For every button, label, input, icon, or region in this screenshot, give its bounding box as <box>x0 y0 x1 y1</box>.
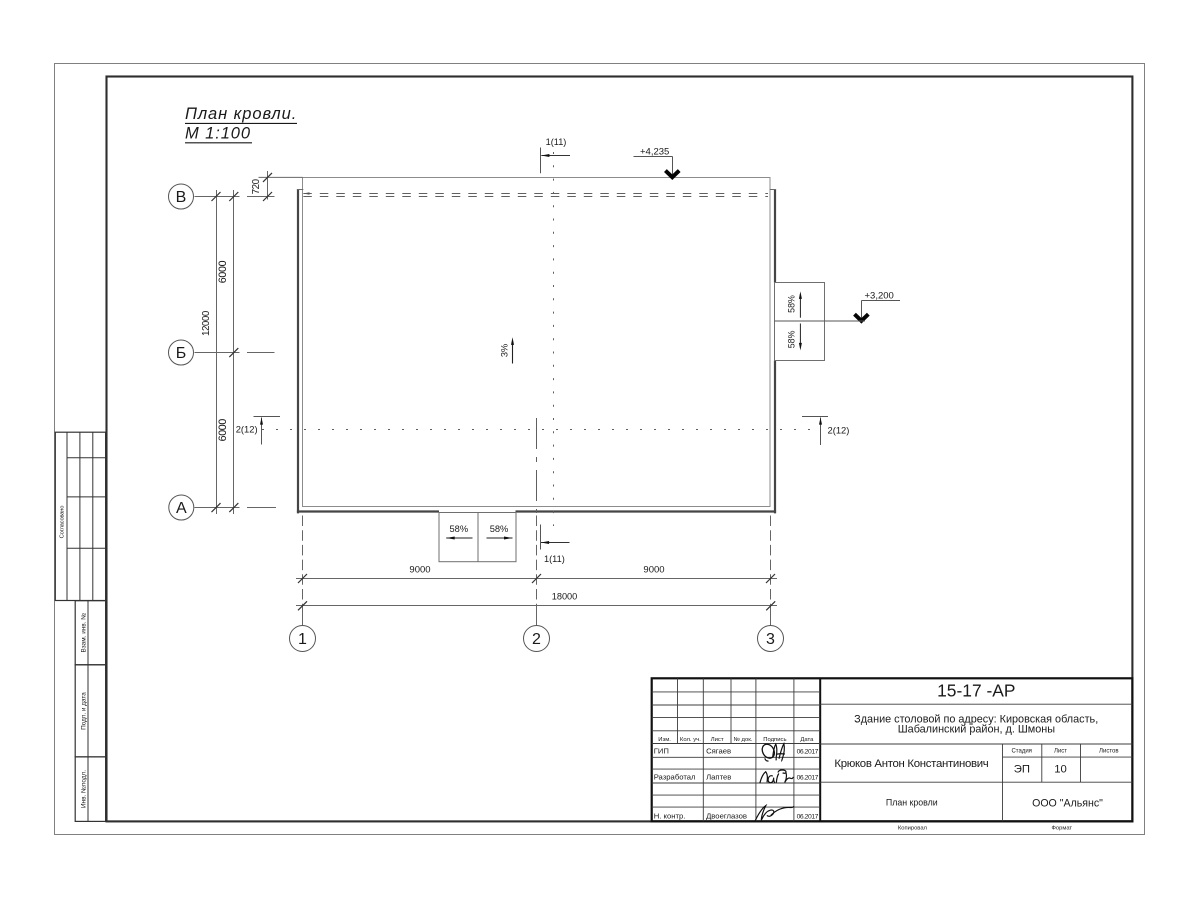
svg-text:2(12): 2(12) <box>828 425 850 436</box>
svg-text:2: 2 <box>532 631 541 648</box>
svg-text:58%: 58% <box>449 524 468 534</box>
svg-text:9000: 9000 <box>643 565 664 576</box>
svg-text:Подпись: Подпись <box>763 737 786 743</box>
svg-text:10: 10 <box>1054 764 1067 776</box>
svg-text:Крюков Антон Константинович: Крюков Антон Константинович <box>834 758 988 770</box>
svg-text:06.2017: 06.2017 <box>797 749 819 756</box>
svg-text:Лист: Лист <box>711 737 724 743</box>
svg-text:+4,235: +4,235 <box>640 147 669 158</box>
svg-text:58%: 58% <box>787 295 797 313</box>
svg-text:1(11): 1(11) <box>544 554 565 564</box>
svg-text:12000: 12000 <box>201 310 212 336</box>
svg-text:ЭП: ЭП <box>1014 764 1030 776</box>
svg-text:Дата: Дата <box>800 737 814 743</box>
svg-text:Стадия: Стадия <box>1011 748 1031 754</box>
svg-text:15-17 -АР: 15-17 -АР <box>937 681 1015 701</box>
svg-text:В: В <box>176 189 187 206</box>
svg-text:Сягаев: Сягаев <box>706 746 731 755</box>
svg-text:ГИП: ГИП <box>654 746 669 755</box>
svg-text:Кол. уч.: Кол. уч. <box>680 737 701 743</box>
svg-text:Б: Б <box>176 345 187 362</box>
svg-text:6000: 6000 <box>217 260 229 283</box>
svg-text:18000: 18000 <box>552 592 578 602</box>
svg-text:+3,200: +3,200 <box>865 291 894 302</box>
svg-text:2(12): 2(12) <box>236 424 258 435</box>
svg-text:58%: 58% <box>490 524 509 534</box>
svg-text:Инв. №подл.: Инв. №подл. <box>81 770 88 808</box>
svg-text:06.2017: 06.2017 <box>797 775 819 782</box>
svg-text:План кровли: План кровли <box>886 797 938 807</box>
svg-text:Взам. инв. №: Взам. инв. № <box>81 613 88 653</box>
svg-text:М 1:100: М 1:100 <box>185 125 251 143</box>
svg-text:720: 720 <box>251 178 262 194</box>
svg-text:№ док.: № док. <box>734 736 753 743</box>
svg-text:Копировал: Копировал <box>898 825 927 831</box>
svg-text:Согласовано: Согласовано <box>60 506 66 539</box>
svg-text:58%: 58% <box>787 330 797 348</box>
svg-text:Изм.: Изм. <box>658 737 671 743</box>
svg-text:1: 1 <box>298 631 307 648</box>
svg-text:Листов: Листов <box>1099 748 1119 754</box>
svg-text:3%: 3% <box>500 344 510 357</box>
svg-text:Н. контр.: Н. контр. <box>654 812 686 821</box>
svg-text:3: 3 <box>766 631 775 648</box>
svg-text:План кровли.: План кровли. <box>185 105 297 123</box>
svg-text:1(11): 1(11) <box>546 137 567 147</box>
svg-text:Подп. и дата: Подп. и дата <box>81 692 88 730</box>
svg-text:ООО "Альянс": ООО "Альянс" <box>1032 797 1103 809</box>
svg-text:Лаптев: Лаптев <box>706 773 731 782</box>
svg-text:Формат: Формат <box>1052 825 1073 831</box>
svg-text:06.2017: 06.2017 <box>797 813 819 820</box>
svg-text:Шабалинский район, д. Шмоны: Шабалинский район, д. Шмоны <box>898 724 1056 736</box>
svg-text:А: А <box>176 500 187 517</box>
svg-text:Лист: Лист <box>1054 748 1067 754</box>
svg-text:9000: 9000 <box>409 565 430 576</box>
svg-text:Двоеглазов: Двоеглазов <box>706 812 747 821</box>
svg-text:Разработал: Разработал <box>654 773 696 782</box>
svg-text:6000: 6000 <box>217 419 229 442</box>
